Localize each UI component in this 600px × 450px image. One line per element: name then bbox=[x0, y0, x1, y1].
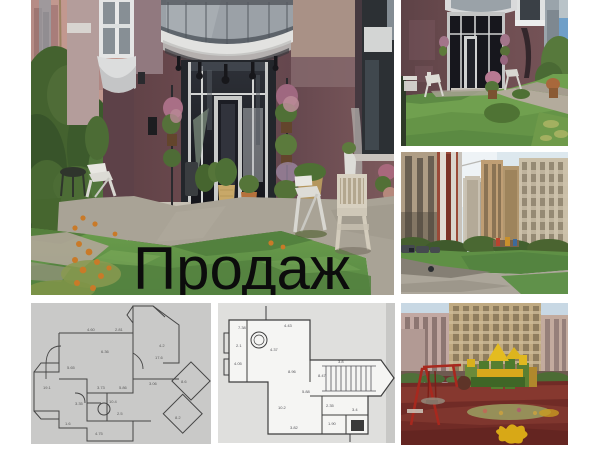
svg-text:4.05: 4.05 bbox=[234, 361, 243, 366]
svg-text:19.1: 19.1 bbox=[43, 385, 52, 390]
svg-text:4.43: 4.43 bbox=[284, 323, 293, 328]
svg-text:2.81: 2.81 bbox=[115, 327, 124, 332]
svg-text:2.35: 2.35 bbox=[326, 403, 335, 408]
svg-text:3.82: 3.82 bbox=[290, 425, 299, 430]
svg-text:3.06: 3.06 bbox=[149, 381, 158, 386]
svg-text:4.2: 4.2 bbox=[159, 343, 165, 348]
svg-text:3.4: 3.4 bbox=[352, 407, 358, 412]
svg-text:3.8: 3.8 bbox=[338, 359, 344, 364]
svg-text:10.2: 10.2 bbox=[278, 405, 287, 410]
svg-text:4.60: 4.60 bbox=[87, 327, 96, 332]
svg-text:7.38: 7.38 bbox=[238, 325, 247, 330]
svg-text:8.96: 8.96 bbox=[288, 369, 297, 374]
svg-text:2.5: 2.5 bbox=[117, 411, 123, 416]
svg-text:2.1: 2.1 bbox=[236, 343, 242, 348]
svg-text:17.6: 17.6 bbox=[155, 355, 164, 360]
svg-text:3.35: 3.35 bbox=[75, 401, 84, 406]
svg-text:4.37: 4.37 bbox=[270, 347, 279, 352]
svg-text:6.36: 6.36 bbox=[101, 349, 110, 354]
svg-text:5.88: 5.88 bbox=[302, 389, 311, 394]
svg-text:3.73: 3.73 bbox=[97, 385, 106, 390]
svg-text:5.65: 5.65 bbox=[67, 365, 76, 370]
svg-text:10.4: 10.4 bbox=[109, 399, 118, 404]
svg-text:1.6: 1.6 bbox=[65, 421, 71, 426]
svg-text:8.2: 8.2 bbox=[175, 415, 181, 420]
svg-text:8.47: 8.47 bbox=[318, 373, 327, 378]
svg-text:5.86: 5.86 bbox=[119, 385, 128, 390]
svg-text:1.90: 1.90 bbox=[328, 421, 337, 426]
svg-text:8.6: 8.6 bbox=[181, 379, 187, 384]
svg-text:Продаж: Продаж bbox=[133, 235, 350, 295]
svg-text:4.75: 4.75 bbox=[95, 431, 104, 436]
